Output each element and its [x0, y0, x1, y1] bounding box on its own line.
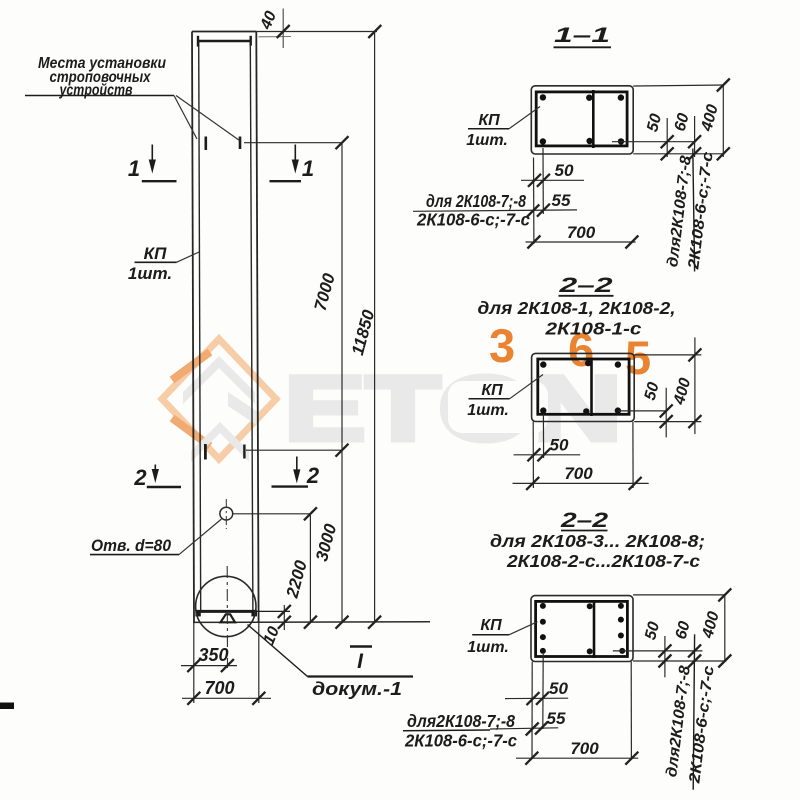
svg-text:2–2: 2–2: [558, 274, 613, 297]
svg-text:50: 50: [550, 436, 569, 455]
svg-text:1–1: 1–1: [554, 24, 610, 47]
svg-text:1шт.: 1шт.: [466, 132, 508, 149]
svg-text:50: 50: [549, 679, 568, 698]
svg-text:Отв. d=80: Отв. d=80: [91, 536, 171, 555]
svg-text:1шт.: 1шт.: [467, 402, 509, 419]
svg-text:700: 700: [564, 464, 593, 483]
svg-text:КП: КП: [478, 112, 500, 129]
svg-text:2К108-1-с: 2К108-1-с: [544, 319, 642, 339]
svg-text:для 2К108-1, 2К108-2,: для 2К108-1, 2К108-2,: [478, 298, 676, 318]
svg-text:2: 2: [306, 463, 320, 488]
svg-text:докум.-1: докум.-1: [312, 679, 402, 699]
svg-text:2К108-6-с;-7-с: 2К108-6-с;-7-с: [416, 210, 530, 230]
svg-text:700: 700: [567, 223, 596, 242]
svg-text:2: 2: [133, 465, 147, 490]
svg-text:2К108-2-с...2К108-7-с: 2К108-2-с...2К108-7-с: [506, 551, 700, 571]
svg-text:700: 700: [204, 678, 234, 698]
svg-text:КП: КП: [144, 244, 167, 263]
svg-text:устройств: устройств: [59, 82, 133, 99]
svg-text:для 2К108-3... 2К108-8;: для 2К108-3... 2К108-8;: [490, 531, 705, 551]
svg-text:для2К108-7;-8: для2К108-7;-8: [407, 711, 515, 731]
svg-text:55: 55: [547, 709, 566, 728]
svg-text:55: 55: [552, 191, 571, 210]
svg-text:2К108-6-с;-7-с: 2К108-6-с;-7-с: [404, 731, 517, 751]
svg-text:700: 700: [570, 739, 599, 758]
svg-text:КП: КП: [480, 617, 502, 634]
svg-text:350: 350: [198, 645, 228, 665]
svg-text:1: 1: [302, 156, 314, 181]
svg-text:1шт.: 1шт.: [467, 639, 509, 656]
svg-text:КП: КП: [481, 382, 503, 399]
svg-text:1шт.: 1шт.: [128, 264, 172, 283]
svg-text:3: 3: [489, 319, 515, 372]
svg-text:1: 1: [128, 156, 140, 181]
svg-text:50: 50: [555, 161, 574, 180]
svg-text:для 2К108-7;-8: для 2К108-7;-8: [426, 191, 526, 211]
svg-text:2–2: 2–2: [560, 509, 609, 532]
